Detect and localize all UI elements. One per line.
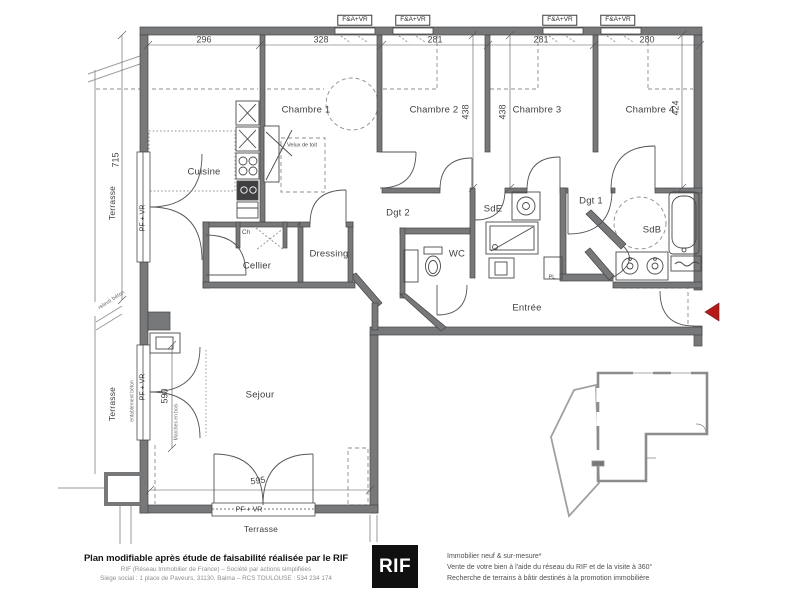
fixtures [106,101,701,504]
footer-company-line: RIF (Réseau Immobilier de France) – Soci… [68,566,364,573]
entrance-arrow-icon [705,303,719,321]
footer-service-line: Immobilier neuf & sur-mesure* [447,551,652,562]
footer-address-line: Siège social : 1 place de Paveurs, 31130… [68,575,364,582]
footer-service-line: Recherche de terrains à bâtir destinés à… [447,573,652,584]
walls [140,27,702,513]
location-inset [551,373,707,516]
rif-logo: RIF [372,545,418,588]
footer-services-block: Immobilier neuf & sur-mesure* Vente de v… [447,551,652,585]
rif-logo-text: RIF [379,556,411,578]
footer-service-line: Vente de votre bien à l'aide du réseau d… [447,562,652,573]
doors [150,146,694,505]
footer-title: Plan modifiable après étude de faisabili… [68,553,364,564]
terrace-outline [58,56,377,544]
footer-left-block: Plan modifiable après étude de faisabili… [68,553,364,582]
floor-plan-drawing [0,0,800,545]
floor-plan-page: 296328281281280715438438424590595Chambre… [0,0,800,600]
footer: Plan modifiable après étude de faisabili… [0,545,800,600]
